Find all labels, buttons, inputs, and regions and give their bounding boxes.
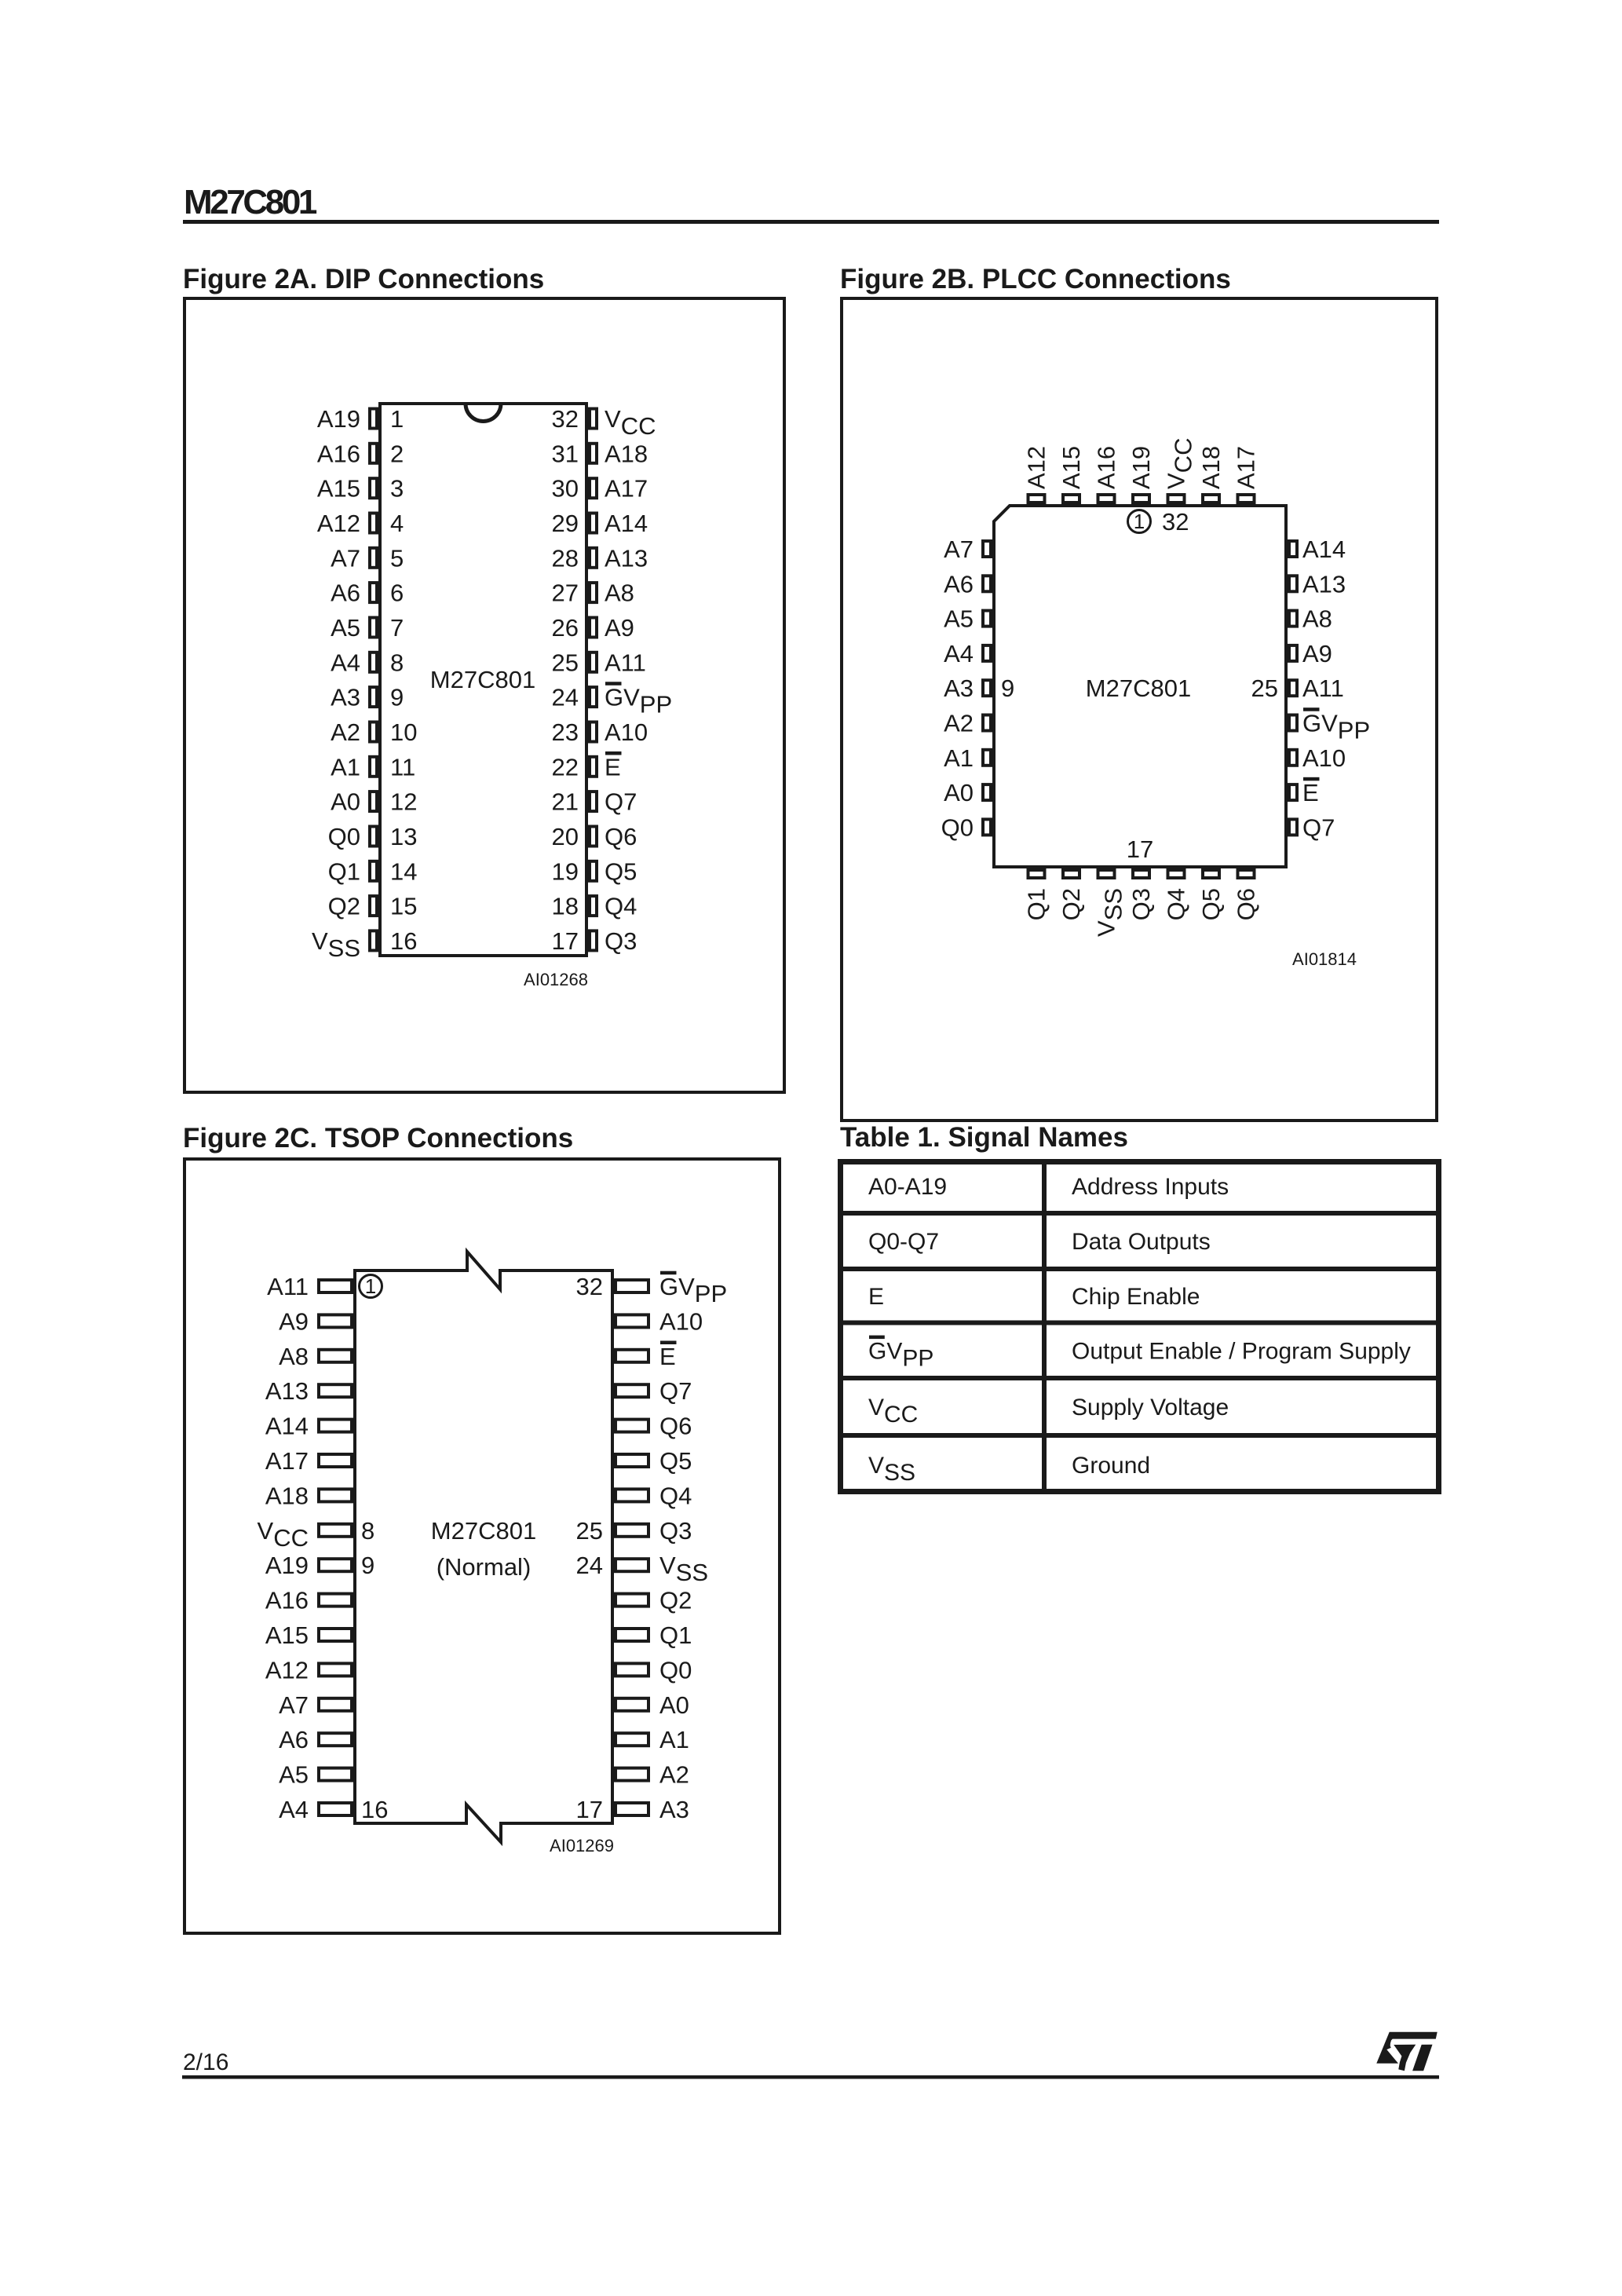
- svg-text:26: 26: [552, 614, 579, 642]
- svg-text:A19: A19: [317, 405, 360, 433]
- svg-text:E: E: [1302, 779, 1319, 806]
- svg-text:A8: A8: [605, 579, 634, 607]
- svg-text:A14: A14: [605, 510, 648, 537]
- svg-text:1: 1: [1134, 510, 1145, 533]
- svg-text:28: 28: [552, 544, 579, 572]
- svg-text:Q1: Q1: [659, 1621, 692, 1649]
- svg-text:A1: A1: [659, 1726, 689, 1753]
- svg-text:30: 30: [552, 475, 579, 503]
- svg-text:A4: A4: [279, 1796, 309, 1823]
- svg-text:VCC: VCC: [868, 1395, 918, 1428]
- svg-text:A8: A8: [279, 1343, 309, 1370]
- svg-text:GVPP: GVPP: [659, 1273, 727, 1307]
- svg-text:Q1: Q1: [328, 857, 360, 885]
- svg-text:Figure 2B. PLCC Connections: Figure 2B. PLCC Connections: [840, 264, 1231, 294]
- svg-text:4: 4: [390, 510, 404, 537]
- svg-text:VSS: VSS: [312, 927, 360, 962]
- svg-text:A12: A12: [1023, 446, 1050, 489]
- svg-text:32: 32: [576, 1273, 603, 1300]
- svg-text:31: 31: [552, 440, 579, 467]
- svg-text:Ground: Ground: [1072, 1453, 1150, 1479]
- svg-text:21: 21: [552, 788, 579, 816]
- svg-text:16: 16: [390, 927, 417, 955]
- svg-text:A4: A4: [331, 649, 360, 676]
- svg-text:E: E: [868, 1284, 884, 1310]
- svg-text:A0-A19: A0-A19: [868, 1174, 947, 1200]
- svg-text:Output Enable / Program Supply: Output Enable / Program Supply: [1072, 1338, 1411, 1364]
- svg-text:AI01268: AI01268: [524, 970, 588, 989]
- svg-text:Q5: Q5: [659, 1447, 692, 1475]
- svg-text:GVPP: GVPP: [605, 684, 672, 718]
- svg-text:Q6: Q6: [1233, 888, 1260, 920]
- svg-text:Q0: Q0: [328, 823, 360, 850]
- svg-text:18: 18: [552, 893, 579, 920]
- svg-text:A10: A10: [1302, 744, 1346, 772]
- svg-text:Address Inputs: Address Inputs: [1072, 1174, 1229, 1200]
- svg-text:A1: A1: [331, 753, 360, 781]
- svg-text:A18: A18: [1197, 446, 1225, 489]
- svg-text:M27C801: M27C801: [1086, 675, 1191, 702]
- svg-text:16: 16: [361, 1796, 388, 1823]
- svg-text:15: 15: [390, 893, 417, 920]
- svg-text:A14: A14: [265, 1413, 309, 1440]
- svg-text:20: 20: [552, 823, 579, 850]
- svg-text:Q4: Q4: [1163, 888, 1190, 920]
- svg-text:25: 25: [1251, 675, 1278, 702]
- svg-text:Q3: Q3: [659, 1517, 692, 1545]
- svg-text:Figure 2A. DIP Connections: Figure 2A. DIP Connections: [183, 264, 544, 294]
- svg-text:A1: A1: [944, 744, 974, 772]
- svg-text:VSS: VSS: [868, 1453, 915, 1486]
- svg-text:Q3: Q3: [1127, 888, 1155, 920]
- svg-text:A3: A3: [944, 675, 974, 702]
- svg-text:Supply Voltage: Supply Voltage: [1072, 1395, 1229, 1420]
- svg-text:25: 25: [552, 649, 579, 676]
- svg-text:A12: A12: [265, 1656, 309, 1684]
- svg-text:A16: A16: [265, 1587, 309, 1614]
- svg-text:8: 8: [390, 649, 404, 676]
- svg-text:14: 14: [390, 857, 417, 885]
- svg-text:A17: A17: [605, 475, 648, 503]
- svg-text:(Normal): (Normal): [437, 1553, 532, 1581]
- svg-text:Chip Enable: Chip Enable: [1072, 1284, 1200, 1310]
- svg-text:Figure 2C. TSOP Connections: Figure 2C. TSOP Connections: [183, 1123, 573, 1153]
- svg-text:11: 11: [390, 753, 415, 781]
- svg-text:9: 9: [390, 684, 404, 711]
- svg-text:A13: A13: [605, 544, 648, 572]
- svg-text:A16: A16: [1093, 446, 1120, 489]
- svg-text:23: 23: [552, 718, 579, 746]
- svg-text:E: E: [605, 753, 621, 781]
- svg-text:A6: A6: [279, 1726, 309, 1753]
- svg-text:Q0: Q0: [659, 1656, 692, 1684]
- svg-text:AI01269: AI01269: [550, 1836, 614, 1855]
- svg-text:8: 8: [361, 1517, 374, 1545]
- svg-text:A17: A17: [265, 1447, 309, 1475]
- svg-text:A2: A2: [331, 718, 360, 746]
- svg-text:A6: A6: [331, 579, 360, 607]
- svg-text:3: 3: [390, 475, 404, 503]
- svg-text:A18: A18: [265, 1482, 309, 1509]
- svg-text:32: 32: [1162, 508, 1189, 536]
- svg-text:7: 7: [390, 614, 404, 642]
- svg-text:A3: A3: [659, 1796, 689, 1823]
- svg-text:19: 19: [552, 857, 579, 885]
- svg-text:A19: A19: [1127, 446, 1155, 489]
- svg-text:2: 2: [390, 440, 404, 467]
- svg-text:A19: A19: [265, 1552, 309, 1579]
- svg-text:Q0-Q7: Q0-Q7: [868, 1229, 939, 1255]
- svg-text:Q7: Q7: [605, 788, 637, 816]
- svg-text:A10: A10: [659, 1307, 703, 1335]
- svg-text:2/16: 2/16: [183, 2049, 228, 2075]
- svg-text:A15: A15: [265, 1621, 309, 1649]
- svg-text:Q2: Q2: [1058, 888, 1085, 920]
- svg-text:A15: A15: [1058, 446, 1085, 489]
- svg-text:A12: A12: [317, 510, 360, 537]
- svg-text:A10: A10: [605, 718, 648, 746]
- svg-text:1: 1: [365, 1274, 376, 1298]
- svg-text:Q7: Q7: [659, 1377, 692, 1405]
- svg-text:GVPP: GVPP: [1302, 710, 1370, 744]
- svg-text:Q6: Q6: [605, 823, 637, 850]
- svg-text:29: 29: [552, 510, 579, 537]
- svg-text:A18: A18: [605, 440, 648, 467]
- svg-text:Q2: Q2: [659, 1587, 692, 1614]
- svg-text:A14: A14: [1302, 536, 1346, 563]
- svg-text:A7: A7: [279, 1691, 309, 1719]
- svg-text:Table 1. Signal Names: Table 1. Signal Names: [840, 1122, 1128, 1153]
- svg-text:VCC: VCC: [605, 405, 656, 440]
- svg-text:VSS: VSS: [1093, 888, 1127, 937]
- svg-text:A2: A2: [659, 1761, 689, 1789]
- svg-text:6: 6: [390, 579, 404, 607]
- svg-text:A9: A9: [1302, 640, 1332, 667]
- svg-text:5: 5: [390, 544, 404, 572]
- svg-text:A5: A5: [279, 1761, 309, 1789]
- svg-text:A2: A2: [944, 710, 974, 737]
- svg-text:24: 24: [576, 1552, 603, 1579]
- svg-text:12: 12: [390, 788, 417, 816]
- svg-text:Q0: Q0: [941, 813, 974, 841]
- svg-text:A15: A15: [317, 475, 360, 503]
- svg-text:A11: A11: [267, 1273, 309, 1300]
- svg-text:A7: A7: [331, 544, 360, 572]
- svg-text:Q7: Q7: [1302, 813, 1335, 841]
- svg-text:Q5: Q5: [605, 857, 637, 885]
- svg-text:17: 17: [1127, 835, 1153, 863]
- svg-text:VCC: VCC: [258, 1517, 309, 1552]
- svg-text:Q6: Q6: [659, 1413, 692, 1440]
- svg-text:A3: A3: [331, 684, 360, 711]
- svg-text:24: 24: [552, 684, 579, 711]
- svg-text:A9: A9: [279, 1307, 309, 1335]
- svg-text:17: 17: [576, 1796, 603, 1823]
- svg-text:A13: A13: [265, 1377, 309, 1405]
- svg-text:A6: A6: [944, 570, 974, 598]
- svg-text:32: 32: [552, 405, 579, 433]
- svg-text:Q1: Q1: [1023, 888, 1050, 920]
- svg-text:A9: A9: [605, 614, 634, 642]
- svg-text:M27C801: M27C801: [430, 666, 535, 693]
- svg-text:A0: A0: [331, 788, 360, 816]
- svg-text:27: 27: [552, 579, 579, 607]
- svg-text:A4: A4: [944, 640, 974, 667]
- svg-text:A0: A0: [944, 779, 974, 806]
- svg-text:9: 9: [361, 1552, 374, 1579]
- svg-text:Data Outputs: Data Outputs: [1072, 1229, 1211, 1255]
- svg-text:M27C801: M27C801: [431, 1517, 536, 1545]
- svg-text:Q5: Q5: [1197, 888, 1225, 920]
- svg-text:A17: A17: [1233, 446, 1260, 489]
- svg-text:22: 22: [552, 753, 579, 781]
- svg-text:Q4: Q4: [659, 1482, 692, 1509]
- svg-text:A8: A8: [1302, 605, 1332, 633]
- svg-text:E: E: [659, 1343, 676, 1370]
- svg-text:A11: A11: [1302, 675, 1344, 702]
- svg-text:AI01814: AI01814: [1292, 949, 1357, 969]
- svg-text:Q4: Q4: [605, 893, 637, 920]
- svg-text:10: 10: [390, 718, 417, 746]
- svg-text:A5: A5: [944, 605, 974, 633]
- svg-text:1: 1: [390, 405, 404, 433]
- svg-text:Q2: Q2: [328, 893, 360, 920]
- svg-text:A7: A7: [944, 536, 974, 563]
- svg-text:A11: A11: [605, 649, 646, 676]
- svg-text:A0: A0: [659, 1691, 689, 1719]
- svg-text:M27C801: M27C801: [184, 183, 317, 221]
- svg-text:17: 17: [552, 927, 579, 955]
- svg-text:VCC: VCC: [1163, 438, 1197, 489]
- svg-text:GVPP: GVPP: [868, 1338, 933, 1371]
- svg-text:A13: A13: [1302, 570, 1346, 598]
- svg-text:VSS: VSS: [659, 1552, 708, 1586]
- svg-text:13: 13: [390, 823, 417, 850]
- svg-text:Q3: Q3: [605, 927, 637, 955]
- svg-text:A16: A16: [317, 440, 360, 467]
- svg-text:25: 25: [576, 1517, 603, 1545]
- svg-text:A5: A5: [331, 614, 360, 642]
- svg-text:9: 9: [1001, 675, 1014, 702]
